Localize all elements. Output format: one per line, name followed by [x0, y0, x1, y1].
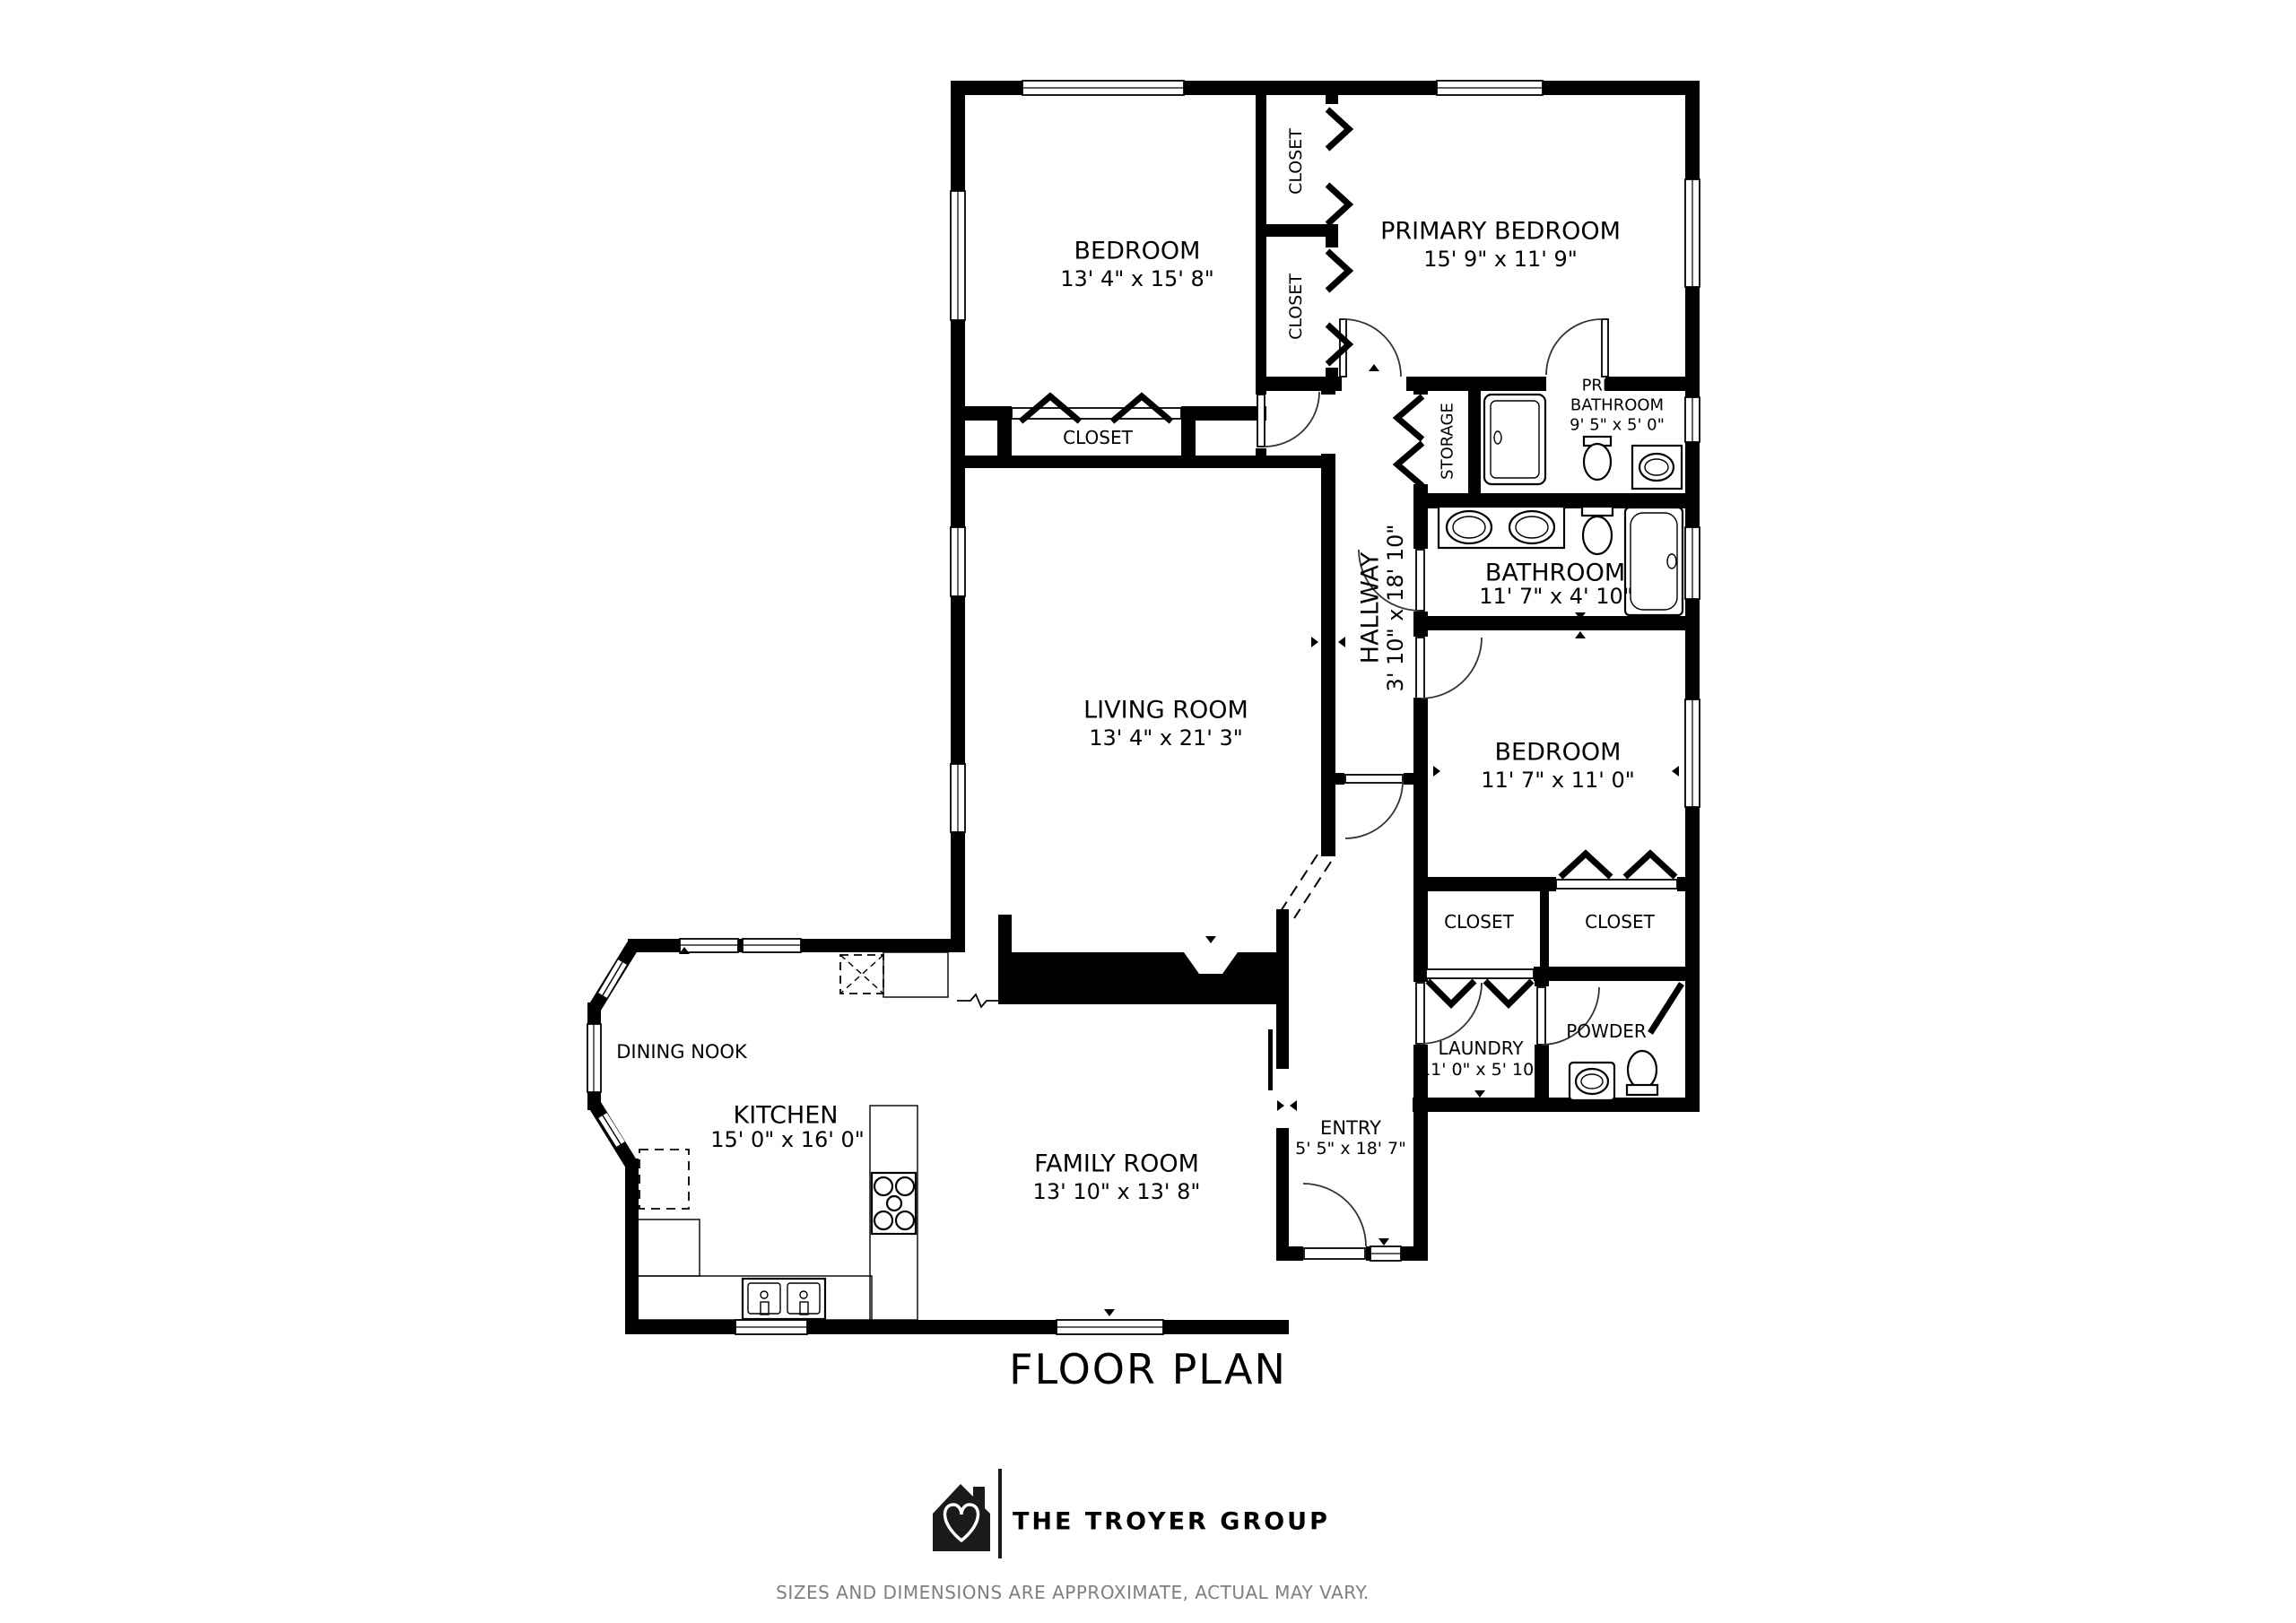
- window: [1370, 1246, 1401, 1261]
- stove: [872, 1173, 916, 1234]
- living-room-dims: 13' 4" x 21' 3": [1089, 725, 1243, 751]
- closet-right-b-label: CLOSET: [1585, 911, 1655, 933]
- window: [680, 939, 738, 952]
- hallway-label-group: HALLWAY 3' 10" x 18' 10": [1357, 525, 1409, 692]
- shower: [1484, 395, 1545, 484]
- closet-bedroom-top-label: CLOSET: [1063, 427, 1133, 448]
- room-labels: BEDROOM 13' 4" x 15' 8" PRIMARY BEDROOM …: [616, 128, 1665, 1204]
- entry-dims: 5' 5" x 18' 7": [1295, 1139, 1406, 1159]
- door-leaf: [1416, 983, 1424, 1044]
- window: [1685, 397, 1700, 442]
- footer: SIZES AND DIMENSIONS ARE APPROXIMATE, AC…: [776, 1582, 1370, 1603]
- door-leaf: [1257, 395, 1265, 447]
- primary-bathroom-label-1: PRIMARY: [1582, 377, 1654, 395]
- house-heart-icon: [933, 1484, 990, 1551]
- cased-opening: [1281, 855, 1318, 911]
- title-block: FLOOR PLAN: [1009, 1345, 1287, 1393]
- window: [1437, 81, 1543, 95]
- kitchen-dims: 15' 0" x 16' 0": [710, 1127, 865, 1152]
- window: [951, 764, 965, 832]
- primary-bedroom-label: PRIMARY BEDROOM: [1380, 218, 1621, 246]
- toilet: [1584, 437, 1611, 480]
- brand-name: THE TROYER GROUP: [1013, 1508, 1330, 1536]
- door-leaf: [1345, 775, 1403, 783]
- family-room-dims: 13' 10" x 13' 8": [1033, 1179, 1201, 1204]
- primary-bathroom-label-2: BATHROOM: [1570, 396, 1664, 415]
- bedroom-top-dims: 13' 4" x 15' 8": [1060, 266, 1214, 291]
- break-line: [957, 994, 998, 1007]
- toilet: [1627, 1051, 1657, 1095]
- door-leaf: [1602, 319, 1608, 377]
- closet-top-a-label: CLOSET: [1286, 128, 1306, 195]
- kitchen-sink: [743, 1279, 825, 1319]
- sink: [1570, 1063, 1614, 1100]
- bedroom-top-label: BEDROOM: [1074, 238, 1201, 265]
- hallway-dims: 3' 10" x 18' 10": [1383, 525, 1408, 692]
- double-vanity: [1439, 507, 1564, 548]
- refrigerator: [639, 1150, 689, 1209]
- storage-label: STORAGE: [1439, 403, 1457, 480]
- branding: THE TROYER GROUP: [933, 1469, 1330, 1558]
- bathtub: [1625, 508, 1683, 615]
- floor-plan-drawing: BEDROOM 13' 4" x 15' 8" PRIMARY BEDROOM …: [0, 0, 2296, 1623]
- window: [1685, 527, 1700, 599]
- entry-label: ENTRY: [1320, 1117, 1381, 1139]
- page-title: FLOOR PLAN: [1009, 1345, 1287, 1393]
- bathroom-dims: 11' 7" x 4' 10": [1479, 584, 1633, 609]
- window: [587, 1024, 601, 1092]
- door-leaf: [1537, 987, 1545, 1045]
- living-room-label: LIVING ROOM: [1083, 697, 1248, 725]
- door-leaf: [1416, 638, 1424, 699]
- window: [951, 191, 965, 320]
- bedroom-right-dims: 11' 7" x 11' 0": [1481, 768, 1635, 793]
- floor-plan-page: BEDROOM 13' 4" x 15' 8" PRIMARY BEDROOM …: [0, 0, 2296, 1623]
- bedroom-right-label: BEDROOM: [1495, 739, 1622, 767]
- hallway-label: HALLWAY: [1357, 551, 1385, 664]
- cased-opening: [1294, 862, 1331, 918]
- laundry-label: LAUNDRY: [1438, 1037, 1524, 1059]
- toilet: [1582, 507, 1613, 554]
- powder-label: POWDER: [1566, 1020, 1647, 1042]
- sink: [1632, 446, 1682, 489]
- dining-nook-label: DINING NOOK: [616, 1041, 748, 1063]
- window: [951, 527, 965, 596]
- window: [1057, 1320, 1163, 1334]
- window: [1685, 179, 1700, 287]
- front-door-leaf: [1304, 1248, 1365, 1259]
- skylight: [840, 955, 883, 994]
- window: [743, 939, 801, 952]
- primary-bathroom-dims: 9' 5" x 5' 0": [1570, 416, 1665, 435]
- window: [1685, 699, 1700, 807]
- pocket-door-leaf: [1268, 1029, 1273, 1090]
- laundry-dims: 11' 0" x 5' 10": [1420, 1060, 1542, 1080]
- disclaimer-text: SIZES AND DIMENSIONS ARE APPROXIMATE, AC…: [776, 1582, 1370, 1603]
- closet-right-a-label: CLOSET: [1444, 911, 1514, 933]
- logo-divider: [998, 1469, 1002, 1558]
- closet-top-b-label: CLOSET: [1286, 273, 1306, 340]
- door-leaf: [1416, 550, 1424, 611]
- primary-bedroom-dims: 15' 9" x 11' 9": [1423, 247, 1578, 272]
- kitchen-label: KITCHEN: [734, 1102, 839, 1130]
- window: [735, 1320, 807, 1334]
- family-room-label: FAMILY ROOM: [1034, 1150, 1199, 1178]
- angled-door-leaf: [1650, 984, 1682, 1033]
- bathroom-label: BATHROOM: [1485, 560, 1625, 587]
- window: [1022, 81, 1184, 95]
